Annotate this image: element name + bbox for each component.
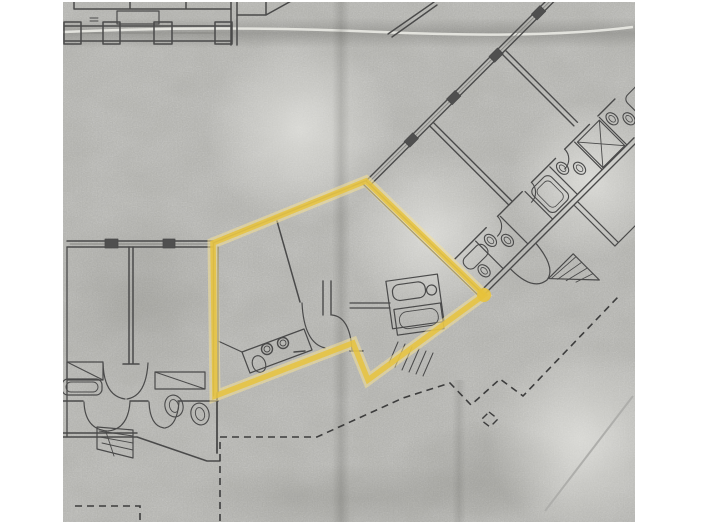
unit-highlight-corner-dot: [477, 288, 491, 302]
scanned-floor-plan-page: [0, 0, 705, 528]
floor-plan-image: [0, 0, 705, 528]
